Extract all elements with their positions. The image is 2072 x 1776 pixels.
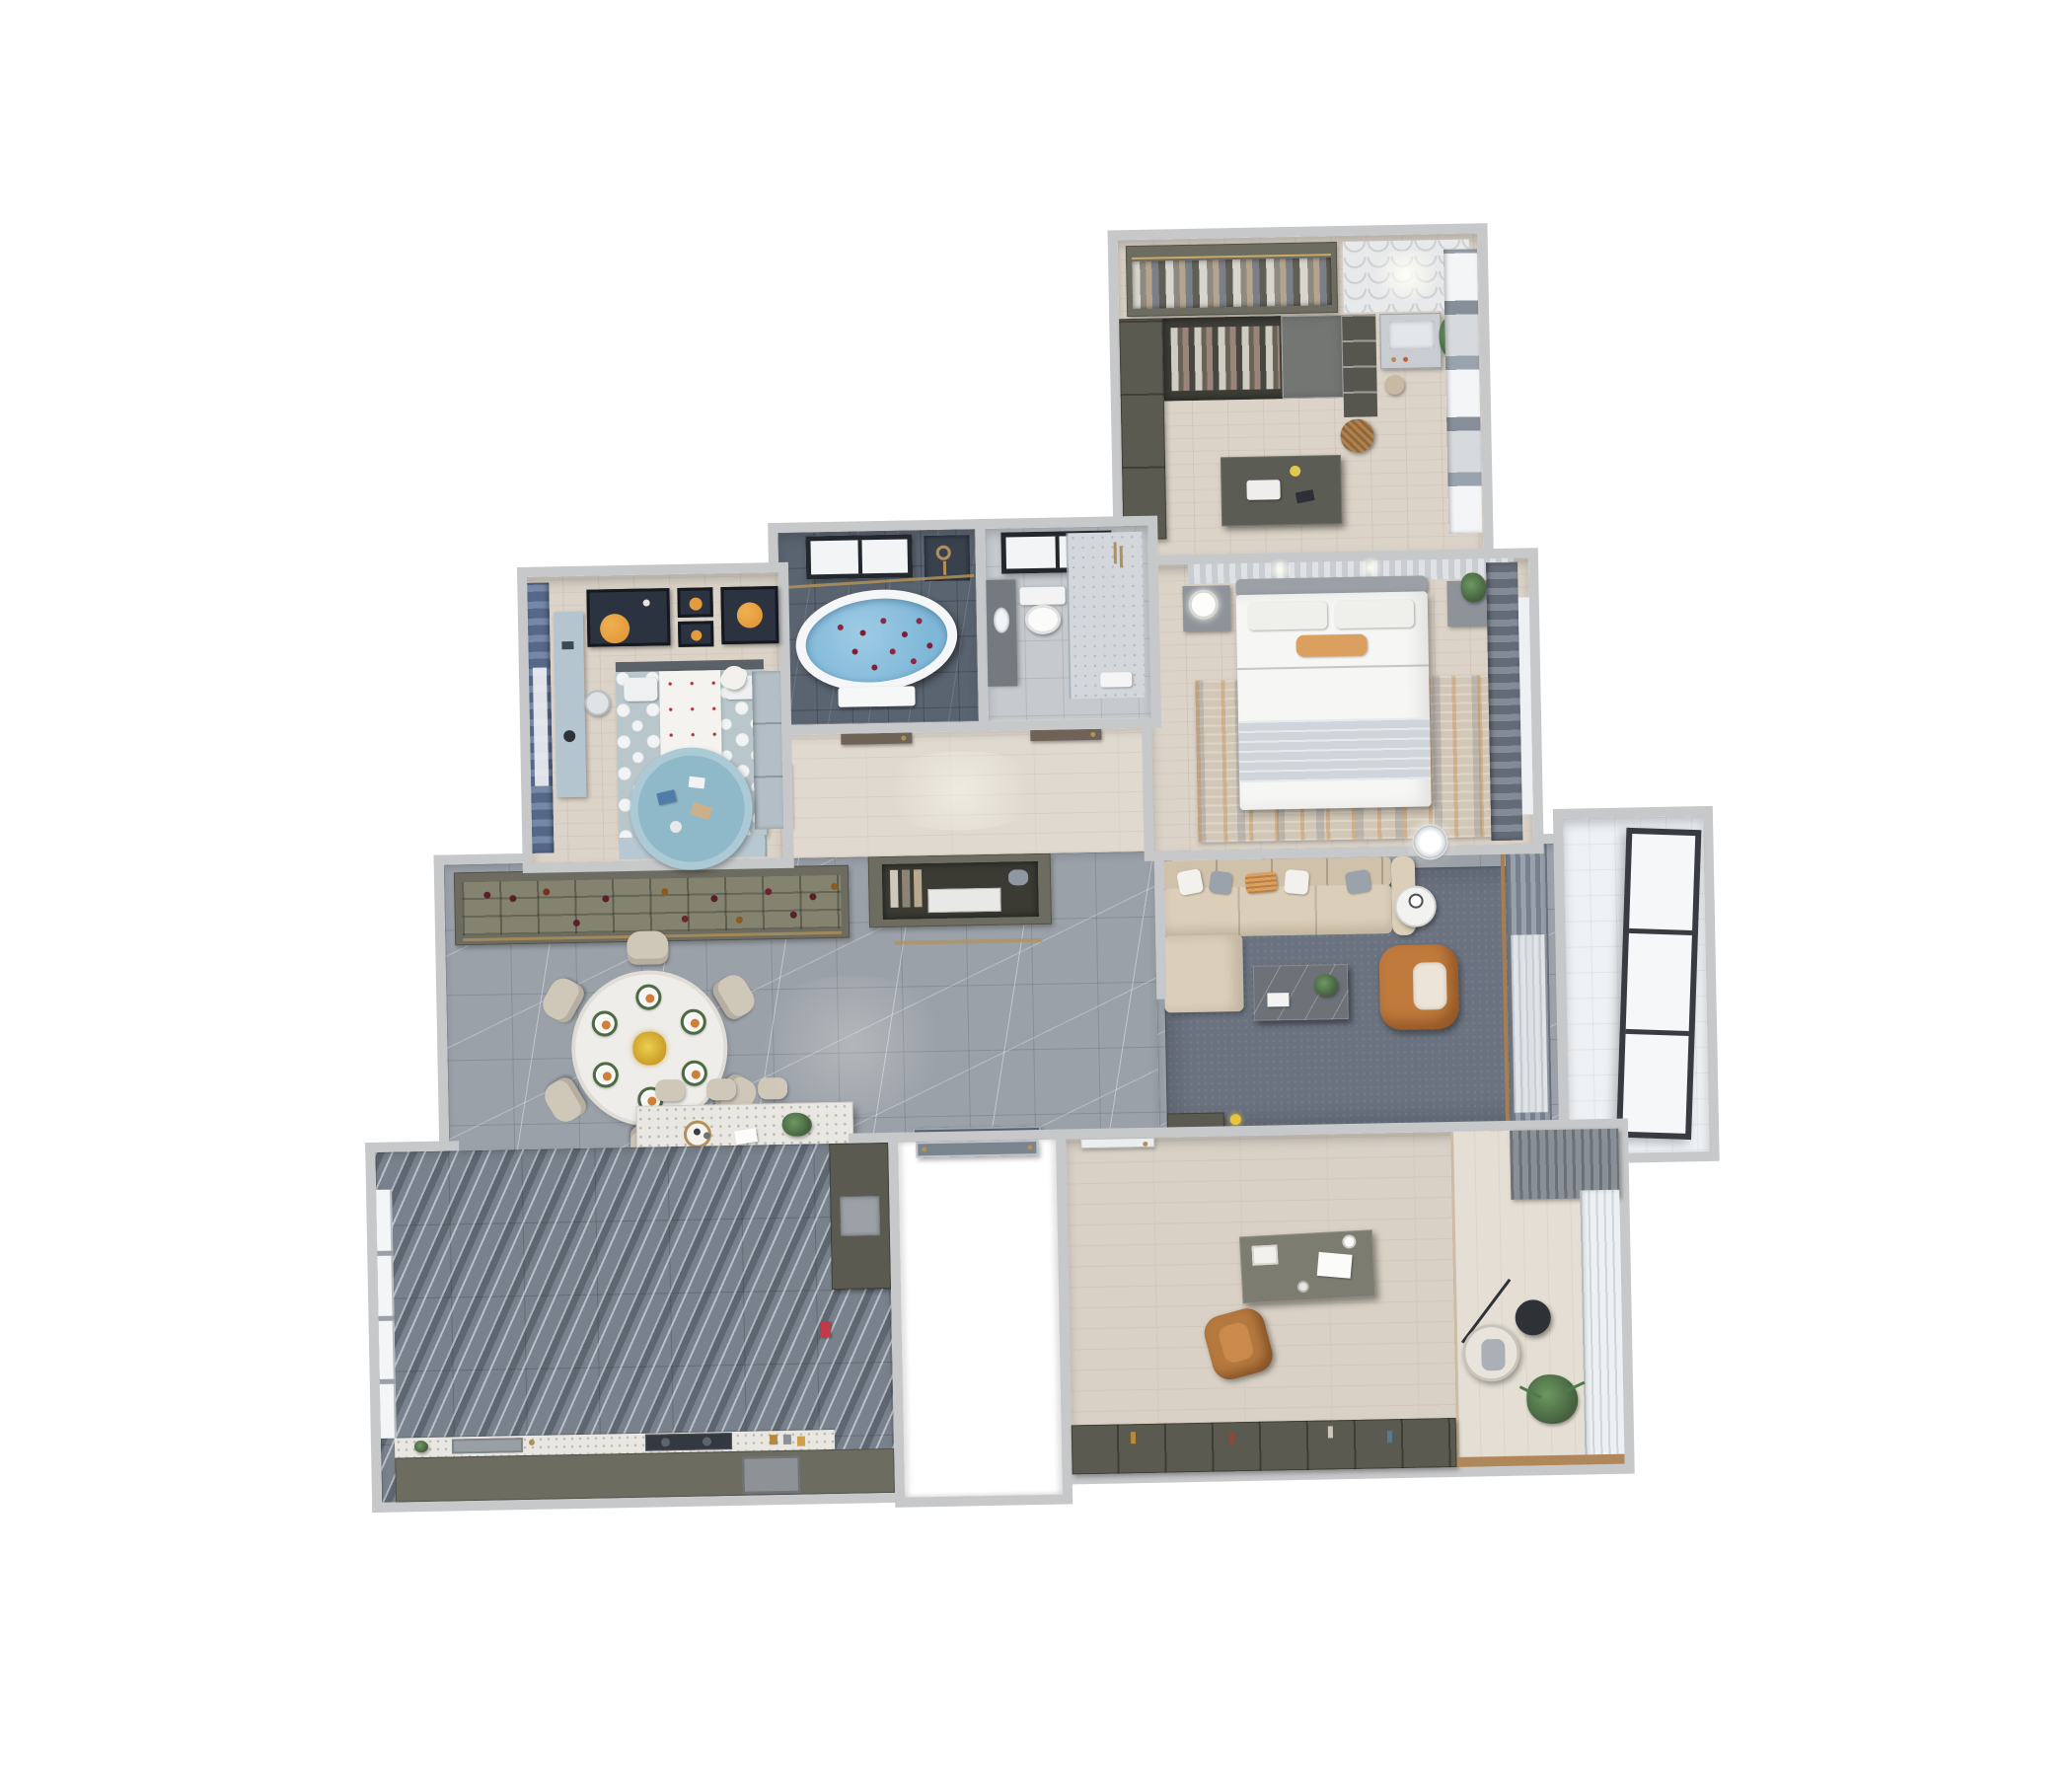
- low-console: [1167, 1112, 1224, 1129]
- bath-mat: [1100, 672, 1132, 688]
- room-kids: [527, 572, 784, 863]
- shower-floor: [1068, 532, 1145, 699]
- planet-art-frame: [678, 621, 713, 647]
- window-mullion: [1629, 928, 1692, 935]
- throw-pillow-grey: [1209, 870, 1232, 894]
- low-bookcase: [1072, 1418, 1457, 1474]
- coffee-cups: [694, 1129, 701, 1136]
- room-guest-bath: [985, 526, 1151, 721]
- east-window-blinds: [1443, 249, 1483, 534]
- living-sheer-curtain: [1511, 934, 1547, 1113]
- rain-shower-head: [936, 546, 951, 560]
- coffee-table: [1253, 964, 1349, 1021]
- island-flowers: [1290, 466, 1300, 477]
- bath-towel: [838, 686, 915, 706]
- dining-chair: [538, 974, 587, 1026]
- room-kitchen: [375, 1143, 895, 1503]
- open-closet: [1162, 315, 1344, 401]
- room-dining-foyer: [444, 851, 1159, 1151]
- room-dressing: [1118, 233, 1484, 555]
- island-camera: [1295, 489, 1315, 503]
- vanity-counter: [986, 579, 1017, 687]
- armchair-cushion: [1413, 962, 1447, 1010]
- nightstand-plant: [1460, 572, 1487, 602]
- curtain-box: [1510, 1129, 1619, 1200]
- writing-desk: [1239, 1229, 1375, 1303]
- island-plant: [782, 1112, 812, 1137]
- planet-art-frame: [586, 588, 670, 647]
- bath-water: [801, 592, 951, 690]
- wine-shelves: [462, 875, 842, 935]
- kids-desk: [554, 612, 587, 798]
- blackout-curtain: [1486, 562, 1522, 842]
- room-hallway: [781, 728, 1153, 858]
- wall-glow: [1367, 250, 1446, 301]
- shelf-cubbies: [1342, 314, 1377, 417]
- orange-lumbar-pillow: [1295, 634, 1367, 657]
- planet-art-frame: [677, 587, 713, 618]
- study-sheer-curtain: [1580, 1190, 1624, 1459]
- kids-wardrobe: [752, 671, 783, 830]
- accent-armchair: [1378, 944, 1459, 1031]
- kitchen-sink: [452, 1438, 523, 1453]
- kids-sheer: [533, 668, 549, 786]
- room-living: [1154, 844, 1569, 1133]
- window-mullion: [857, 540, 862, 573]
- laptop: [1317, 1252, 1353, 1279]
- kids-pillow: [624, 677, 657, 702]
- mirror: [1388, 321, 1435, 349]
- bed-pillow: [1335, 600, 1415, 629]
- counter-bottles: [770, 1435, 777, 1444]
- flower-centerpiece: [632, 1031, 667, 1066]
- wall-dining-north-stub: [434, 853, 533, 865]
- cooktop: [645, 1433, 732, 1451]
- room-master-bath: [777, 529, 979, 725]
- closet-decor: [1008, 869, 1028, 885]
- entrance-glass-door: [913, 1126, 1041, 1141]
- toilet-tank: [1019, 586, 1065, 605]
- coffee-table-plant: [1314, 974, 1338, 996]
- bath-window: [805, 534, 913, 579]
- island-tray: [1246, 480, 1280, 500]
- faucet: [529, 1440, 535, 1445]
- wall-kitchen-step: [365, 1141, 459, 1152]
- coffee-table-tray: [1267, 993, 1289, 1006]
- lounge-cushion: [1481, 1339, 1506, 1370]
- wall-living-ne-stub: [1533, 834, 1563, 845]
- screenshot-canvas: [0, 0, 2072, 1776]
- bathroom-door: [1030, 729, 1101, 741]
- apartment-floorplan: [358, 229, 1716, 1519]
- fire-extinguisher: [821, 1321, 831, 1337]
- room-entrance: [898, 1140, 1063, 1498]
- desk-lamp: [1342, 1234, 1357, 1249]
- dining-chair: [540, 1073, 590, 1127]
- closet-garments: [1170, 326, 1280, 391]
- kids-room-door: [782, 763, 792, 828]
- dishwasher: [742, 1456, 800, 1494]
- rattan-basket: [1340, 418, 1374, 453]
- throw-pillow-orange: [1244, 871, 1278, 894]
- planet-art-frame: [720, 586, 778, 644]
- desk-papers: [1251, 1244, 1278, 1265]
- window-mullion: [1055, 537, 1060, 568]
- counter-herb-plant: [414, 1441, 428, 1452]
- entry-door-leaf: [916, 1140, 1038, 1157]
- wall-foyer-south-stub: [849, 1133, 903, 1144]
- gold-shower-fixture: [1114, 542, 1117, 563]
- dining-chair: [627, 930, 669, 965]
- open-book: [734, 1128, 758, 1145]
- bar-stool: [706, 1078, 736, 1101]
- balcony-window: [1616, 828, 1701, 1140]
- study-door: [1080, 1138, 1154, 1148]
- dining-chair: [709, 970, 760, 1023]
- room-study: [1066, 1129, 1624, 1475]
- vanity-mirror: [1379, 313, 1442, 369]
- bed-pillow: [1248, 601, 1328, 630]
- sofa-chaise: [1163, 934, 1243, 1013]
- throw-pillow-grey: [1345, 869, 1371, 895]
- window-sill-bench: [1456, 1454, 1624, 1467]
- closet-drawers: [927, 888, 1000, 913]
- room-balcony: [1563, 816, 1710, 1154]
- wardrobe: [1126, 242, 1338, 317]
- desk-chair: [584, 690, 610, 715]
- throw-pillow-white: [1176, 868, 1204, 896]
- hanging-clothes: [1132, 258, 1332, 309]
- desk-chair: [1201, 1304, 1277, 1383]
- window-mullion: [1626, 1029, 1689, 1036]
- bed: [1236, 591, 1432, 810]
- entry-closet: [868, 853, 1052, 928]
- throw-pillow-white: [1284, 869, 1309, 895]
- bar-stool: [655, 1079, 685, 1102]
- island-dresser: [1221, 455, 1342, 526]
- vanity-sink: [994, 607, 1009, 632]
- glass-sliding-door: [1281, 315, 1344, 399]
- toilet-bowl: [1025, 604, 1062, 634]
- table-lamp: [1408, 893, 1423, 908]
- tall-pantry-cabinet: [829, 1143, 891, 1290]
- chair-seat: [1217, 1321, 1255, 1366]
- closet-niche: [882, 861, 1039, 920]
- room-master-bedroom: [1148, 557, 1533, 851]
- duvet-fold: [1237, 664, 1429, 670]
- gold-threshold: [894, 938, 1042, 945]
- hanging-clothes: [890, 870, 899, 908]
- vanity-stool: [1384, 375, 1404, 395]
- coffee-cup: [1299, 1283, 1307, 1291]
- pantry-niche: [840, 1196, 880, 1236]
- shower-arm: [943, 561, 946, 575]
- bathtub: [790, 582, 962, 700]
- hallway-ceiling-glow: [871, 750, 1051, 832]
- bathroom-door: [841, 732, 912, 744]
- tall-cabinet: [1119, 318, 1166, 540]
- floor-light-glow: [742, 974, 962, 1116]
- bed-throw-blanket: [1238, 717, 1431, 782]
- study-plant: [1526, 1374, 1579, 1425]
